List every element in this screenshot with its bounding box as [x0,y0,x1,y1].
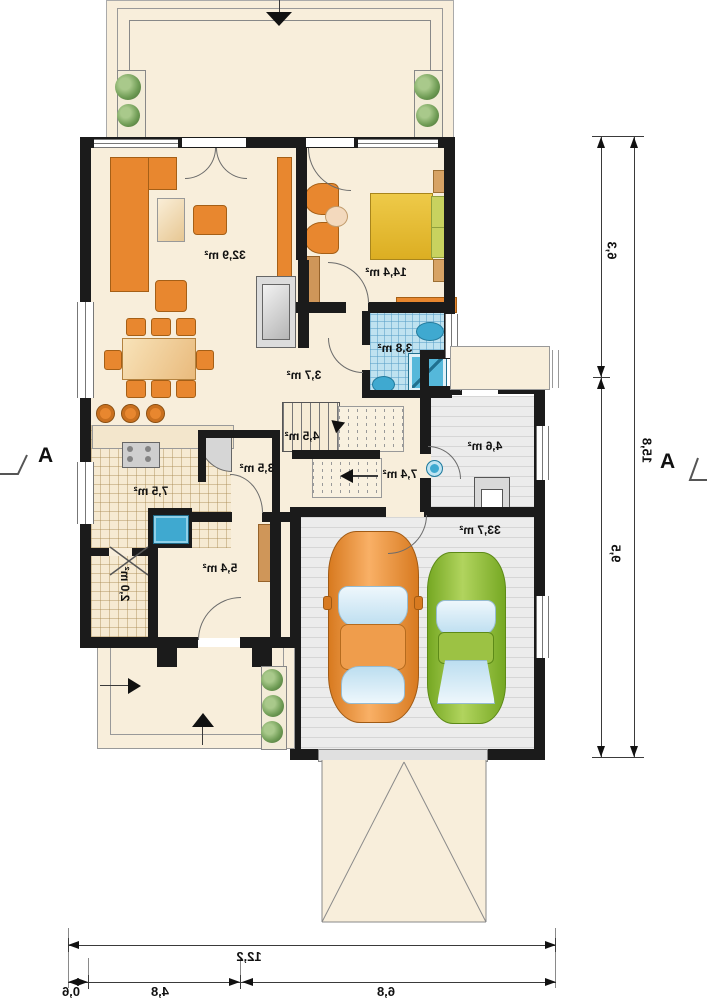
wall [420,394,431,454]
plant-icon [416,104,439,127]
room-label-hall: 3,7 m² [281,368,327,382]
stairs-arrow-line [352,475,378,477]
dim-tick [88,975,89,989]
section-marker-right: A [660,450,675,474]
wall [484,749,545,760]
wall [198,430,206,482]
plant-icon [115,74,141,100]
window [536,426,549,480]
dim-label-bottom-middle: 4,8 [140,984,180,999]
room-label-bathroom: 3,8 m² [372,341,418,355]
wall [292,450,380,459]
room-label-garage: 33,7 m² [457,523,503,537]
bar-stool [146,404,165,423]
section-line-right [682,458,707,486]
car-green-roof [438,632,494,664]
window [358,139,438,148]
wall [298,260,309,348]
wall [362,390,452,398]
wall [424,507,534,517]
dim-line-right-inner [601,137,602,757]
dim-label-right-top: 6,3 [605,237,620,265]
stairs-arrow-head [340,469,353,483]
dining-chair [151,318,171,336]
dining-chair [196,350,214,370]
floor-plan-canvas: 32,9 m² 14,4 m² 3,8 m² 3,7 m² 4,5 m² 3,5… [0,0,707,1000]
dim-label-bottom-total: 12,2 [226,949,272,964]
room-label-utility: 4,6 m² [462,439,508,453]
stove-burner [145,446,151,452]
plant-icon [262,695,284,717]
stairs-flight-dashed [338,406,404,452]
room-label-stairs: 4,5 m² [279,429,325,443]
side-arrow-icon [128,678,141,694]
dim-arrow [597,366,605,377]
dining-chair [126,318,146,336]
dim-label-bottom-right: 6,8 [366,984,406,999]
car-mirror-icon [323,596,332,610]
window [536,596,549,658]
wall [290,507,386,517]
entrance-arrow-line [202,727,203,745]
dim-label-right-bottom: 9,5 [609,540,624,568]
room-label-vestibule: 5,4 m² [197,561,243,575]
porch-column [252,647,272,667]
dining-chair [176,380,196,398]
stove-burner [145,456,151,462]
plant-icon [261,669,283,691]
room-label-kitchen: 7,5 m² [128,484,174,498]
car-green-rear-window [437,660,495,704]
stove-burner [127,446,133,452]
porch-column [157,647,177,667]
dim-tick [592,757,644,758]
wall [296,148,307,260]
dining-table [122,338,196,380]
stove-burner [127,456,133,462]
dim-arrow [545,941,556,949]
coffee-table [157,198,185,242]
entrance-arrow-icon [192,713,214,727]
room-label-pantry: 2,0 m² [118,564,132,604]
car-green-windshield [436,600,496,636]
side-porch-step [552,350,553,388]
dim-arrow [242,978,253,986]
car-mirror-icon [414,596,423,610]
wall [420,478,431,512]
car-orange-windshield [338,586,408,628]
fireplace-insert [262,284,290,340]
door-opening [182,138,246,147]
dim-arrow [630,746,638,757]
room-label-corridor: 7,4 m² [377,467,423,481]
dim-tick [240,975,241,989]
plant-icon [261,721,283,743]
side-porch-step [558,350,559,388]
room-label-bedroom: 14,4 m² [363,265,409,279]
bar-stool [121,404,140,423]
plant-icon [414,74,440,100]
door-opening [306,138,354,147]
dim-arrow [630,137,638,148]
car-orange-roof [340,624,406,670]
dim-arrow [68,941,79,949]
terrace-outline-inner [129,20,431,138]
driveway [314,760,494,926]
plant-icon [117,104,140,127]
boiler-door [481,489,503,509]
car-orange-rear-window [341,666,405,704]
dining-chair [126,380,146,398]
window [77,462,94,524]
toilet [416,322,444,341]
section-line-left [0,450,36,480]
dim-arrow [229,978,240,986]
dim-line-bottom-segments [68,982,556,983]
room-label-living: 32,9 m² [202,248,248,262]
down-arrow-icon [266,12,292,26]
dim-arrow [597,378,605,389]
armchair [193,205,227,235]
room-label-wardrobe: 3,5 m² [234,461,280,475]
window [77,302,94,398]
dim-arrow [597,746,605,757]
dining-chair [176,318,196,336]
dim-line-right-outer [634,137,635,757]
dining-chair [104,350,122,370]
sofa [110,157,149,292]
dining-chair [151,380,171,398]
dim-arrow [545,978,556,986]
tv-cabinet [277,157,292,277]
window [94,139,178,148]
bed [370,193,433,260]
dim-label-bottom-left: 0,6 [54,984,88,999]
armchair [155,280,187,312]
dim-line-bottom-total [68,945,556,946]
kitchen-sink [153,515,189,544]
dim-arrow [597,137,605,148]
wall [362,311,370,345]
side-porch [450,346,550,390]
section-marker-left: A [38,444,53,468]
wall [198,430,280,438]
wall [80,637,198,648]
bar-stool [96,404,115,423]
wall [91,548,109,556]
dim-label-right-total: 15,8 [640,434,655,468]
wall [270,512,281,637]
side-table [325,206,348,227]
wall [368,302,455,313]
side-arrow-line [100,685,128,686]
